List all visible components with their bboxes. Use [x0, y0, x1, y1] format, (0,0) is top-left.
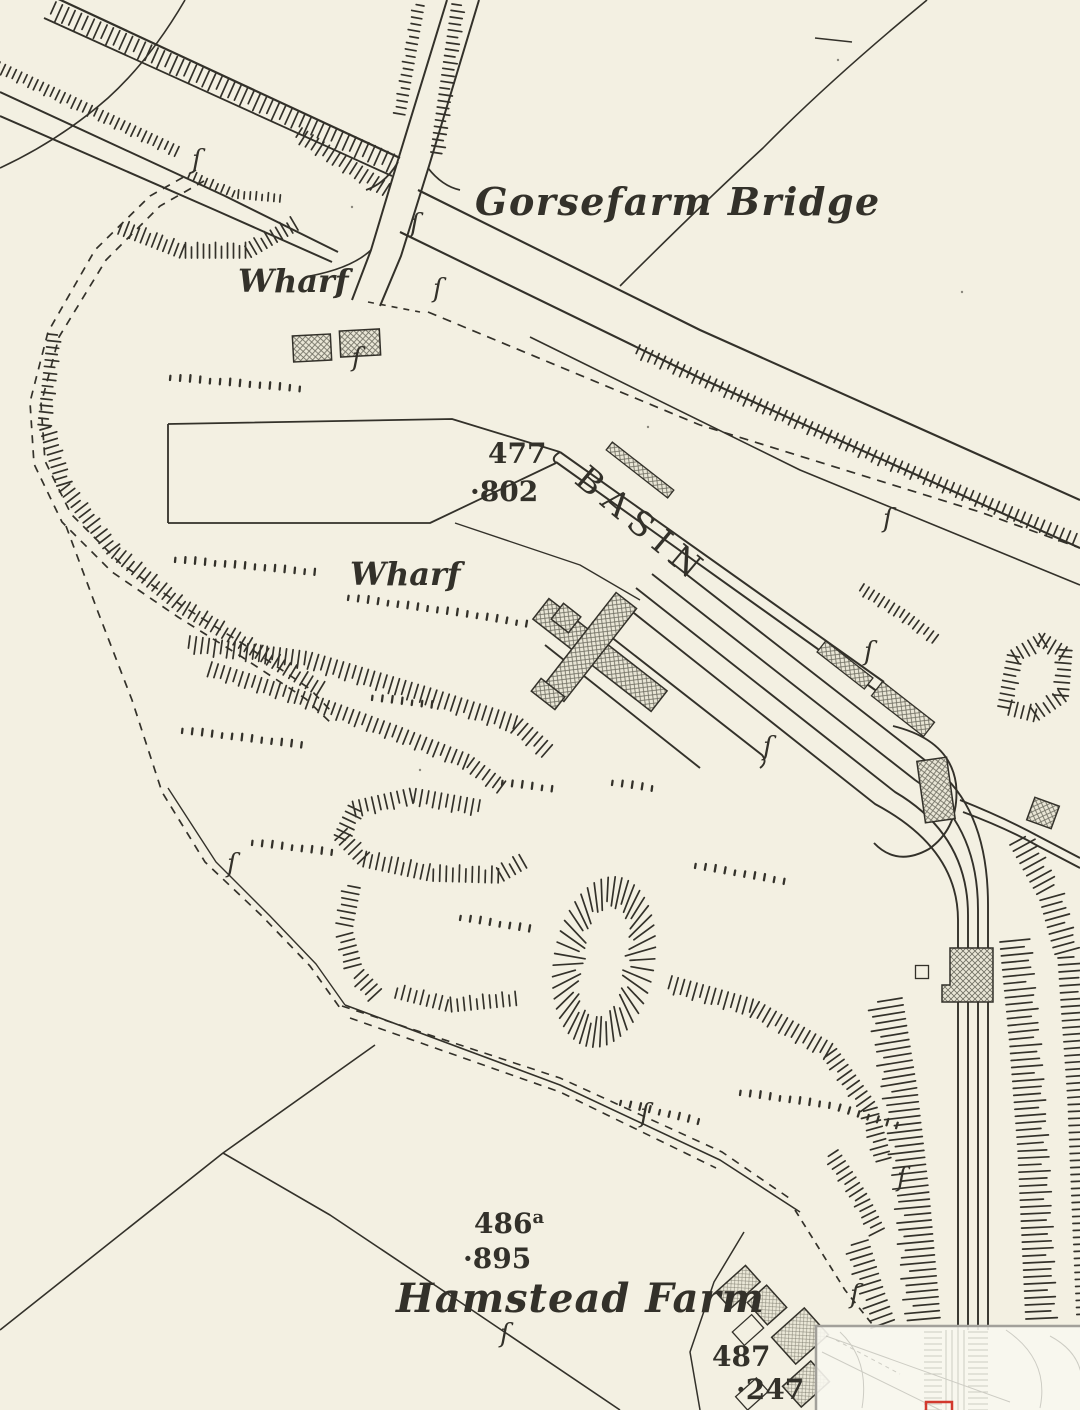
label-level-247: ·247 [736, 1373, 804, 1406]
label-wharf-lower: Wharf [350, 555, 466, 593]
label-hamstead-farm: Hamstead Farm [395, 1275, 765, 1322]
label-plot-487: 487 [712, 1340, 770, 1373]
wharf-building [292, 334, 331, 362]
label-gorsefarm-bridge: Gorsefarm Bridge [475, 179, 881, 224]
label-level-895: ·895 [463, 1242, 531, 1275]
label-level-802: ·802 [470, 475, 538, 508]
paper-speck [961, 291, 963, 293]
overview-inset[interactable] [816, 1326, 1080, 1410]
trackside-building [942, 948, 993, 1002]
label-plot-477: 477 [488, 437, 546, 470]
map-canvas: ſſſſſſſſſſſſGorsefarm BridgeWharfWharfBA… [0, 0, 1080, 1410]
paper-speck [351, 206, 353, 208]
label-wharf-upper: Wharf [238, 262, 354, 300]
paper-speck [419, 769, 421, 771]
paper-speck [647, 426, 649, 428]
map-viewport[interactable]: ſſſſſſſſſſſſGorsefarm BridgeWharfWharfBA… [0, 0, 1080, 1410]
paper-speck [837, 59, 839, 61]
